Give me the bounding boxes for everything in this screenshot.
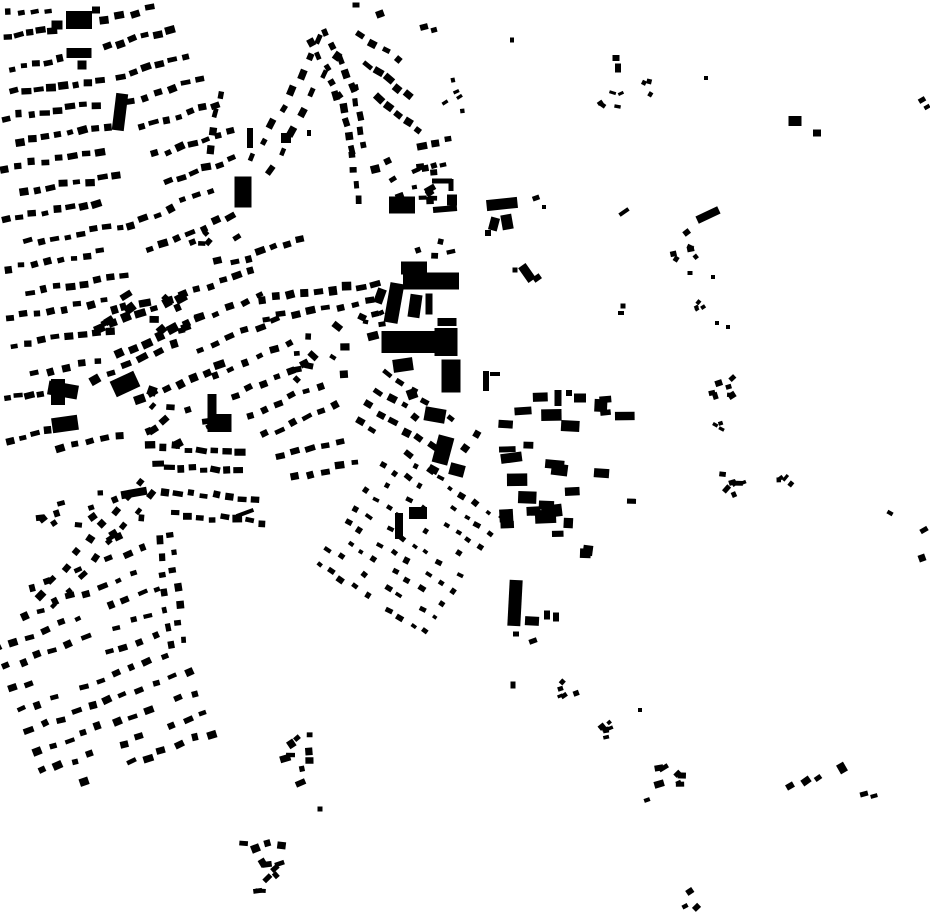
building-footprint: [88, 373, 101, 386]
building-footprint: [371, 310, 380, 317]
building-footprint: [50, 519, 58, 527]
building-footprint: [209, 517, 216, 522]
building-footprint: [79, 683, 89, 690]
building-footprint: [274, 427, 285, 435]
building-footprint: [676, 782, 684, 787]
building-footprint: [305, 333, 311, 340]
building-footprint: [167, 672, 177, 679]
building-footprint: [211, 371, 219, 380]
building-footprint: [19, 435, 27, 441]
building-footprint: [245, 517, 254, 523]
building-footprint: [354, 181, 360, 189]
building-footprint: [813, 130, 821, 137]
building-footprint: [561, 420, 580, 432]
building-footprint: [180, 79, 191, 86]
building-footprint: [712, 392, 719, 400]
building-footprint: [32, 60, 40, 66]
building-footprint: [50, 694, 59, 701]
building-footprint: [383, 157, 392, 166]
building-footprint: [115, 39, 126, 49]
building-footprint: [360, 141, 367, 148]
building-footprint: [168, 567, 176, 573]
building-footprint: [52, 760, 64, 771]
building-footprint: [246, 412, 254, 420]
building-footprint: [4, 395, 11, 401]
building-footprint: [305, 747, 313, 755]
building-footprint: [715, 321, 719, 325]
building-footprint: [218, 91, 225, 99]
building-footprint: [157, 238, 169, 248]
building-footprint: [923, 104, 930, 110]
building-footprint: [419, 195, 427, 199]
building-footprint: [301, 412, 312, 421]
building-footprint: [490, 372, 500, 376]
building-footprint: [695, 299, 701, 305]
building-footprint: [262, 316, 270, 322]
building-footprint: [392, 83, 403, 94]
building-footprint: [574, 394, 586, 403]
building-footprint: [363, 319, 369, 324]
building-footprint: [456, 572, 463, 578]
building-footprint: [442, 360, 461, 393]
building-footprint: [340, 370, 349, 378]
building-footprint: [91, 553, 101, 563]
building-footprint: [580, 548, 591, 558]
building-footprint: [72, 758, 79, 765]
building-footprint: [118, 644, 129, 653]
building-footprint: [373, 66, 385, 77]
building-footprint: [66, 11, 92, 29]
building-footprint: [413, 463, 419, 470]
building-footprint: [532, 194, 540, 201]
building-footprint: [140, 94, 149, 103]
building-footprint: [167, 84, 178, 94]
building-footprint: [306, 37, 316, 47]
building-footprint: [432, 614, 437, 619]
building-footprint: [647, 91, 653, 97]
building-footprint: [138, 298, 151, 307]
building-footprint: [382, 331, 437, 353]
building-footprint: [615, 412, 635, 421]
building-footprint: [870, 793, 878, 799]
building-footprint: [167, 56, 177, 63]
building-footprint: [234, 449, 245, 456]
building-footprint: [4, 266, 12, 274]
building-footprint: [328, 286, 337, 296]
building-footprint: [21, 88, 31, 95]
building-footprint: [210, 465, 221, 473]
building-footprint: [171, 549, 177, 555]
building-footprint: [240, 298, 250, 307]
building-footprint: [191, 690, 199, 698]
building-footprint: [384, 482, 391, 489]
building-footprint: [514, 406, 532, 415]
building-footprint: [403, 89, 414, 100]
building-footprint: [523, 442, 533, 449]
building-footprint: [239, 841, 248, 846]
building-footprint: [13, 393, 22, 398]
building-footprint: [367, 426, 376, 434]
building-footprint: [428, 196, 437, 201]
building-footprint: [305, 757, 313, 764]
building-footprint: [150, 305, 158, 312]
building-footprint: [1, 116, 10, 123]
building-footprint: [410, 412, 420, 422]
building-footprint: [174, 141, 185, 152]
building-footprint: [262, 873, 272, 883]
building-footprint: [435, 559, 443, 567]
building-footprint: [142, 754, 154, 764]
building-footprint: [507, 473, 527, 486]
building-footprint: [528, 637, 537, 644]
building-footprint: [195, 447, 207, 455]
building-footprint: [719, 471, 726, 477]
building-footprint: [219, 276, 228, 283]
building-footprint: [573, 690, 580, 697]
building-footprint: [13, 31, 24, 39]
building-footprint: [615, 64, 621, 73]
building-footprint: [120, 596, 130, 605]
building-footprint: [207, 188, 215, 195]
building-footprint: [692, 254, 698, 261]
building-footprint: [37, 238, 46, 246]
building-footprint: [126, 221, 136, 230]
building-footprint: [1, 215, 11, 223]
building-footprint: [72, 81, 79, 88]
building-footprint: [334, 461, 344, 470]
building-footprint: [378, 321, 386, 327]
building-footprint: [44, 9, 52, 14]
building-footprint: [330, 400, 340, 410]
building-footprint: [306, 471, 315, 480]
building-footprint: [5, 8, 11, 15]
building-footprint: [86, 300, 96, 310]
building-footprint: [449, 587, 457, 595]
building-footprint: [422, 528, 429, 535]
building-footprint: [189, 464, 197, 470]
building-footprint: [318, 807, 323, 812]
building-footprint: [286, 753, 295, 757]
building-footprint: [163, 177, 173, 185]
building-footprint: [0, 165, 9, 174]
building-footprint: [153, 586, 160, 592]
building-footprint: [78, 359, 86, 367]
building-footprint: [369, 555, 377, 563]
building-footprint: [152, 680, 160, 687]
building-footprint: [918, 96, 927, 104]
building-footprint: [23, 237, 33, 244]
building-footprint: [260, 406, 269, 415]
building-footprint: [340, 343, 349, 350]
building-footprint: [513, 632, 519, 637]
building-footprint: [327, 567, 336, 575]
building-footprint: [544, 611, 550, 620]
building-footprint: [222, 448, 232, 455]
building-footprint: [207, 419, 215, 426]
building-footprint: [800, 776, 811, 787]
building-footprint: [41, 210, 49, 216]
building-footprint: [486, 530, 493, 537]
building-footprint: [46, 84, 56, 92]
building-footprint: [471, 498, 480, 507]
building-footprint: [387, 417, 398, 427]
building-footprint: [321, 305, 330, 311]
building-footprint: [566, 390, 572, 396]
building-footprint: [307, 732, 313, 737]
building-footprint: [533, 392, 548, 401]
building-footprint: [212, 256, 222, 265]
building-footprint: [356, 195, 362, 204]
building-footprint: [392, 357, 414, 373]
building-footprint: [373, 388, 384, 397]
building-footprint: [450, 505, 457, 512]
building-footprint: [499, 509, 513, 523]
building-footprint: [119, 290, 132, 302]
building-footprint: [369, 280, 381, 289]
building-footprint: [112, 93, 128, 131]
building-footprint: [159, 553, 166, 561]
building-footprint: [92, 7, 100, 14]
building-footprint: [272, 292, 280, 300]
building-footprint: [407, 294, 422, 318]
building-footprint: [420, 397, 430, 406]
building-footprint: [134, 732, 144, 740]
building-footprint: [145, 3, 155, 10]
building-footprint: [85, 179, 95, 187]
building-footprint: [161, 653, 169, 660]
building-footprint: [41, 719, 50, 728]
building-footprint: [692, 903, 701, 912]
building-footprint: [353, 3, 360, 8]
building-footprint: [681, 903, 688, 909]
building-footprint: [342, 117, 351, 127]
building-footprint: [351, 582, 359, 589]
building-footprint: [97, 173, 108, 180]
building-footprint: [18, 10, 26, 16]
building-footprint: [215, 161, 224, 169]
building-footprint: [55, 444, 66, 454]
building-footprint: [166, 322, 180, 335]
building-footprint: [304, 444, 316, 453]
building-footprint: [389, 175, 398, 183]
building-footprint: [460, 443, 470, 453]
building-footprint: [61, 364, 71, 373]
building-footprint: [513, 268, 518, 273]
building-footprint: [78, 202, 88, 211]
building-footprint: [455, 549, 463, 557]
building-footprint: [285, 290, 296, 300]
building-footprints-canvas: [0, 0, 930, 924]
building-footprint: [290, 472, 299, 481]
building-footprint: [138, 588, 149, 596]
building-footprint: [391, 470, 398, 477]
building-footprint: [365, 296, 375, 304]
building-footprint: [115, 432, 123, 440]
building-footprint: [145, 441, 156, 449]
building-footprint: [176, 601, 184, 609]
building-footprint: [427, 464, 439, 475]
building-footprint: [113, 348, 124, 359]
building-footprint: [206, 283, 215, 291]
building-footprint: [198, 241, 205, 246]
building-footprint: [395, 378, 405, 387]
building-footprint: [7, 683, 18, 692]
building-footprint: [338, 552, 346, 560]
building-footprint: [119, 522, 128, 531]
building-footprint: [196, 515, 204, 521]
building-footprint: [464, 515, 470, 521]
building-footprint: [351, 460, 358, 465]
building-footprint: [53, 131, 61, 138]
building-footprint: [531, 510, 542, 516]
building-footprint: [31, 746, 42, 756]
building-footprint: [273, 373, 281, 380]
building-footprint: [448, 462, 466, 477]
building-footprint: [423, 406, 446, 423]
building-footprint: [87, 512, 97, 522]
building-footprint: [814, 774, 823, 782]
building-footprint: [166, 404, 175, 410]
building-footprint: [43, 59, 53, 66]
building-footprint: [134, 308, 147, 319]
building-footprint: [39, 110, 49, 116]
building-footprint: [416, 482, 423, 489]
building-footprint: [176, 174, 187, 182]
building-footprint: [266, 118, 277, 130]
building-footprint: [119, 273, 129, 279]
building-footprint: [91, 125, 99, 132]
building-footprint: [171, 510, 180, 515]
building-footprint: [128, 344, 139, 354]
building-footprint: [173, 694, 183, 702]
building-footprint: [618, 207, 629, 217]
building-footprint: [414, 126, 422, 134]
building-footprint: [557, 686, 564, 692]
building-footprint: [38, 765, 47, 773]
building-footprint: [1, 661, 10, 669]
building-footprint: [164, 25, 176, 35]
building-footprint: [233, 467, 243, 473]
building-footprint: [331, 90, 340, 101]
building-footprint: [165, 204, 175, 214]
building-footprint: [134, 686, 144, 695]
building-footprint: [160, 588, 168, 596]
building-footprint: [123, 550, 134, 560]
building-footprint: [336, 304, 345, 312]
building-footprint: [207, 145, 215, 154]
building-footprint: [137, 214, 148, 223]
building-footprint: [688, 271, 693, 275]
building-footprint: [500, 521, 514, 529]
building-footprint: [299, 765, 305, 772]
building-footprint: [282, 240, 291, 248]
building-footprint: [314, 51, 321, 60]
building-footprint: [376, 542, 384, 549]
building-footprint: [393, 110, 403, 120]
building-footprint: [446, 414, 454, 422]
building-footprint: [102, 223, 112, 230]
building-footprint: [45, 184, 56, 192]
building-footprint: [115, 577, 122, 583]
building-footprint: [726, 325, 730, 329]
building-footprint: [210, 340, 220, 348]
building-footprint: [258, 520, 265, 527]
building-footprint: [437, 474, 445, 481]
building-footprint: [201, 162, 212, 171]
building-footprint: [618, 91, 624, 96]
building-footprint: [120, 740, 129, 748]
building-footprint: [71, 441, 79, 448]
building-footprint: [33, 701, 42, 710]
building-footprint: [0, 644, 2, 654]
building-footprint: [375, 9, 385, 18]
building-footprint: [101, 695, 112, 705]
building-footprint: [241, 358, 250, 367]
building-footprint: [263, 839, 271, 847]
building-footprint: [143, 705, 155, 715]
building-footprint: [184, 229, 195, 237]
building-footprint: [10, 344, 18, 350]
building-footprint: [51, 415, 79, 433]
building-footprint: [387, 525, 395, 532]
building-footprint: [81, 633, 92, 641]
building-footprint: [106, 369, 115, 377]
building-footprint: [162, 384, 172, 393]
building-footprint: [341, 69, 351, 80]
building-footprint: [191, 733, 199, 742]
building-footprint: [95, 358, 102, 364]
building-footprint: [127, 34, 137, 43]
building-footprint: [204, 238, 213, 247]
building-footprint: [33, 86, 44, 92]
building-footprint: [718, 421, 723, 426]
building-footprint: [367, 331, 380, 342]
building-footprint: [126, 757, 137, 765]
building-footprint: [255, 323, 267, 332]
building-footprint: [210, 448, 218, 454]
building-footprint: [402, 556, 410, 564]
building-footprint: [265, 164, 276, 176]
building-footprint: [174, 740, 185, 750]
building-footprint: [395, 592, 403, 599]
building-footprint: [160, 488, 169, 497]
building-footprint: [373, 287, 387, 304]
building-footprint: [383, 73, 395, 85]
building-footprint: [348, 541, 355, 547]
building-footprint: [64, 102, 75, 110]
building-footprint: [919, 526, 928, 534]
building-footprint: [376, 411, 386, 420]
building-footprint: [695, 206, 720, 223]
building-footprint: [196, 347, 204, 354]
building-footprint: [174, 620, 181, 626]
building-footprint: [200, 468, 207, 473]
building-footprint: [367, 39, 378, 49]
building-footprint: [269, 243, 278, 251]
building-footprint: [36, 391, 44, 398]
building-footprint: [430, 27, 437, 33]
building-footprint: [18, 262, 25, 267]
building-footprint: [446, 249, 455, 255]
building-footprint: [379, 461, 387, 469]
building-footprint: [28, 111, 35, 118]
building-footprint: [175, 379, 186, 390]
building-footprint: [102, 41, 112, 50]
building-footprint: [437, 238, 444, 245]
building-footprint: [231, 392, 240, 400]
building-footprint: [184, 667, 194, 677]
building-footprint: [485, 510, 491, 516]
